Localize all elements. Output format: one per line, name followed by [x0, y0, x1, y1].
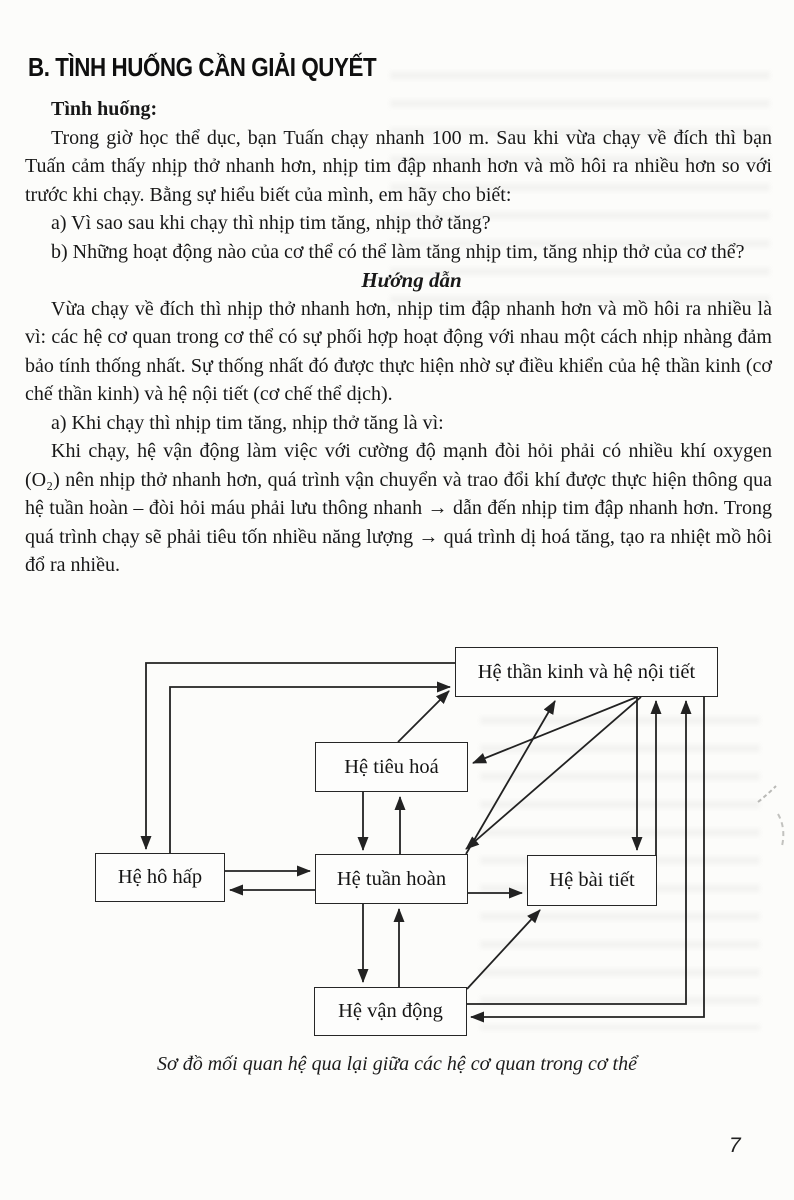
diagram-node-circulatory: Hệ tuần hoàn: [315, 854, 468, 904]
diagram-node-respiratory: Hệ hô hấp: [95, 853, 225, 902]
diagram-node-label: Hệ tiêu hoá: [344, 756, 439, 779]
diagram-node-digestive: Hệ tiêu hoá: [315, 742, 468, 792]
edge-circulatory-to-nervous: [466, 701, 555, 854]
book-page: B. TÌNH HUỐNG CẦN GIẢI QUYẾT Tình huống:…: [0, 0, 794, 1200]
diagram-node-label: Hệ thần kinh và hệ nội tiết: [478, 661, 695, 684]
edge-nervous-to-digestive: [473, 697, 637, 763]
edge-digestive-to-nervous: [398, 691, 449, 742]
diagram-node-motor: Hệ vận động: [314, 987, 467, 1036]
diagram-node-label: Hệ tuần hoàn: [337, 868, 446, 891]
edge-nervous-to-circulatory: [466, 697, 641, 849]
diagram-caption: Sơ đồ mối quan hệ qua lại giữa các hệ cơ…: [0, 1053, 794, 1076]
organ-systems-diagram: Hệ thần kinh và hệ nội tiếtHệ tiêu hoáHệ…: [0, 0, 794, 1200]
page-number: 7: [729, 1134, 741, 1158]
diagram-node-excretory: Hệ bài tiết: [527, 855, 657, 906]
diagram-node-nervous: Hệ thần kinh và hệ nội tiết: [455, 647, 718, 697]
edge-motor-to-excretory: [467, 910, 540, 989]
diagram-node-label: Hệ vận động: [338, 1000, 443, 1023]
diagram-node-label: Hệ bài tiết: [549, 869, 634, 892]
diagram-node-label: Hệ hô hấp: [118, 866, 202, 889]
edge-motor-to-nervous: [467, 701, 686, 1004]
